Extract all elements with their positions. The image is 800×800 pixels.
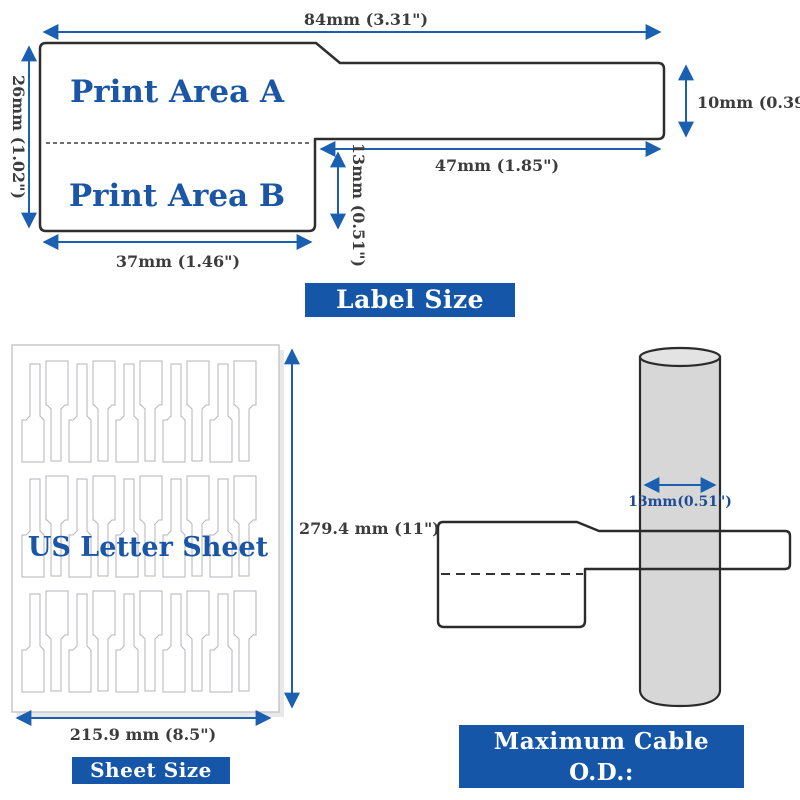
label-size-diagram: Print Area A Print Area B 84mm (3.31") 2… bbox=[9, 10, 800, 271]
dim-tail-length-text: 47mm (1.85") bbox=[435, 156, 559, 175]
dim-cable-diameter-text: 13mm(0.51") bbox=[628, 494, 732, 510]
max-cable-od-line1: Maximum Cable O.D.: bbox=[459, 726, 744, 788]
print-area-b-label: Print Area B bbox=[69, 178, 285, 214]
dim-sheet-width: 215.9 mm (8.5") bbox=[17, 718, 270, 744]
sheet-size-diagram: US Letter Sheet 279.4 mm (11") 215.9 mm … bbox=[12, 345, 440, 744]
dim-body-width: 37mm (1.46") bbox=[44, 242, 311, 271]
max-cable-od-line2: 13mm(0.51") bbox=[459, 788, 744, 800]
dim-total-width-text: 84mm (3.31") bbox=[304, 10, 428, 29]
dim-sheet-width-text: 215.9 mm (8.5") bbox=[70, 725, 216, 744]
cable-top-ellipse bbox=[640, 348, 720, 366]
dim-body-width-text: 37mm (1.46") bbox=[116, 252, 240, 271]
dim-wrap-height-text: 13mm (0.51") bbox=[349, 143, 368, 267]
dim-tail-length: 47mm (1.85") bbox=[321, 149, 660, 175]
label-size-banner: Label Size bbox=[305, 283, 515, 317]
print-area-a-label: Print Area A bbox=[70, 74, 285, 110]
sheet-size-banner-text: Sheet Size bbox=[90, 758, 212, 782]
dim-wrap-height: 13mm (0.51") bbox=[338, 143, 368, 267]
sheet-size-banner: Sheet Size bbox=[72, 757, 230, 784]
dim-sheet-height: 279.4 mm (11") bbox=[292, 350, 440, 707]
infographic-canvas: Print Area A Print Area B 84mm (3.31") 2… bbox=[0, 0, 800, 800]
dim-sheet-height-text: 279.4 mm (11") bbox=[299, 519, 440, 538]
dim-tail-height: 10mm (0.39") bbox=[686, 66, 800, 136]
dim-body-height-text: 26mm (1.02") bbox=[9, 75, 28, 199]
label-size-banner-text: Label Size bbox=[336, 285, 484, 314]
diagram-svg: Print Area A Print Area B 84mm (3.31") 2… bbox=[0, 0, 800, 800]
dim-body-height: 26mm (1.02") bbox=[9, 47, 29, 227]
dim-total-width: 84mm (3.31") bbox=[44, 10, 660, 32]
sheet-title: US Letter Sheet bbox=[28, 532, 269, 563]
dim-tail-height-text: 10mm (0.39") bbox=[697, 93, 800, 112]
max-cable-od-banner: Maximum Cable O.D.: 13mm(0.51") bbox=[459, 725, 744, 788]
cable-diagram: 13mm(0.51") bbox=[438, 348, 790, 706]
